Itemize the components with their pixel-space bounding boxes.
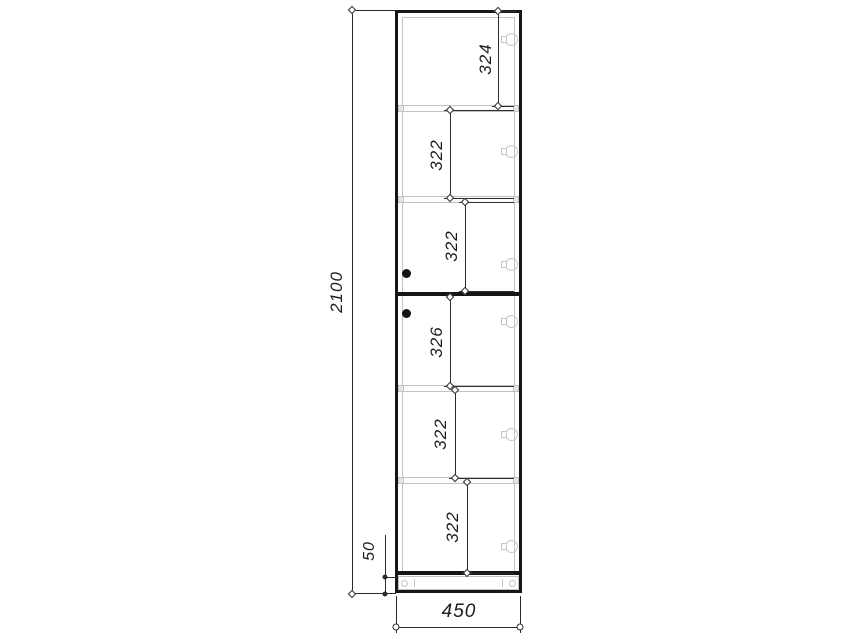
- dim-label-compartment-4: 326: [427, 326, 447, 357]
- dim-label-compartment-5: 322: [431, 418, 451, 449]
- hinge-icon: [505, 428, 518, 441]
- hinge-icon: [505, 258, 518, 271]
- dimension-marker: [348, 590, 356, 598]
- dimension-marker: [348, 6, 356, 14]
- dim-label-compartment-6: 322: [443, 511, 463, 542]
- extension-line: [352, 10, 396, 11]
- dimension-line: [385, 535, 386, 594]
- door-split-line: [398, 292, 519, 296]
- extension-line: [444, 198, 514, 199]
- dimension-line: [498, 11, 499, 106]
- hinge-icon: [505, 315, 518, 328]
- dimension-marker: [517, 624, 524, 631]
- extension-line: [444, 110, 514, 111]
- hinge-icon: [505, 540, 518, 553]
- dim-label-overall-height: 2100: [327, 271, 347, 313]
- dimension-line: [467, 482, 468, 573]
- dimension-marker: [393, 624, 400, 631]
- dimension-line: [450, 110, 451, 198]
- dim-label-compartment-1: 324: [476, 43, 496, 74]
- dimension-marker: [383, 575, 388, 580]
- hinge-icon: [505, 145, 518, 158]
- handle-icon: [402, 269, 411, 278]
- dim-label-compartment-2: 322: [427, 139, 447, 170]
- foot-icon: [414, 579, 415, 587]
- foot-icon: [502, 579, 503, 587]
- dimension-line: [465, 202, 466, 291]
- foot-icon: [401, 580, 408, 587]
- technical-drawing-canvas: 2100 50 450 324 322: [0, 0, 856, 642]
- handle-icon: [402, 309, 411, 318]
- dim-label-overall-width: 450: [442, 601, 477, 623]
- dim-label-compartment-3: 322: [442, 230, 462, 261]
- extension-line: [352, 593, 396, 594]
- hinge-icon: [505, 33, 518, 46]
- dimension-line: [396, 627, 520, 628]
- foot-icon: [509, 580, 516, 587]
- dimension-line: [352, 10, 353, 594]
- cabinet-outline: [395, 10, 522, 593]
- dimension-line: [450, 297, 451, 386]
- dimension-marker: [383, 592, 388, 597]
- dimension-line: [455, 390, 456, 478]
- plinth: [398, 576, 519, 590]
- dim-label-plinth-height: 50: [361, 541, 379, 561]
